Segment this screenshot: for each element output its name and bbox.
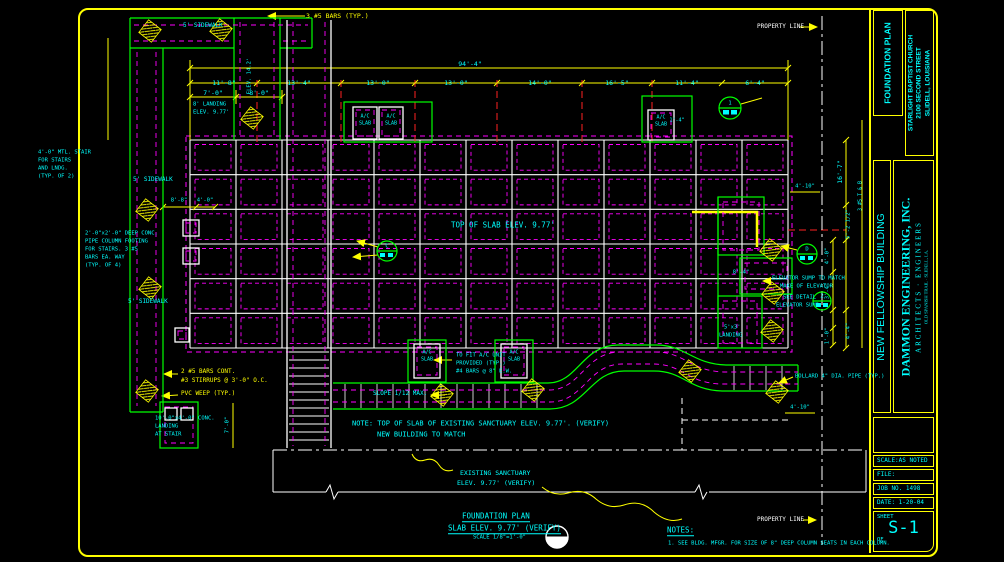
plan-type-label: FOUNDATION PLAN (882, 22, 893, 104)
dim-bay: 13'-0" (366, 80, 389, 87)
property-line-label: PROPERTY LINE (757, 24, 804, 30)
dim-overall-width: 94'-4" (458, 61, 481, 68)
ac-slab-label: SLAB (421, 358, 433, 363)
dim-bay: 13'-0" (444, 80, 467, 87)
client-line: 2100 SECOND STREET (915, 12, 923, 154)
dim-vert: 7'-0" (225, 417, 231, 434)
drawing-subtitle: SLAB ELEV. 9.77' (VERIFY) (448, 524, 561, 534)
elevator-note: MAKE OF ELEVATOR (780, 284, 833, 290)
landing-note: 10'-0"x4'-0" CONC. (155, 416, 215, 422)
titleblock-client: STARLIGHT BAPTIST CHURCH 2100 SECOND STR… (905, 10, 934, 156)
dim-bay: 6'-4" (745, 80, 765, 87)
ac-slab-label: A/C (509, 351, 518, 356)
detail-marker-label: D (805, 247, 808, 253)
dim-small: 8'-8" (171, 198, 188, 204)
landing-note: AT STAIR (155, 432, 182, 438)
ac-slab-label: SLAB (655, 123, 667, 128)
elevator-note: SEE DETAIL (783, 295, 816, 301)
ac-note: TO FIT A/C UNIT (456, 353, 506, 359)
stair-note: (TYP. OF 2) (38, 174, 74, 180)
landing-note: LANDING (719, 333, 742, 339)
dim-small: 1'-4" (669, 119, 684, 124)
firm-address-label: OLD SPANISH TRAIL · SLIDELL, LA. (923, 163, 929, 411)
elevator-note: ELEVATOR SUMP TO MATCH (772, 276, 845, 282)
sheet-number: S-1 (874, 520, 933, 537)
bollard-note: BOLLARD 4" DIA. PIPE (TYP.) (795, 374, 884, 380)
ac-note: #4 BARS @ 8" E.W. (456, 369, 512, 375)
dim-sub: 7'-0" (203, 90, 223, 97)
sidewalk-label: 5' SIDEWALK (133, 177, 173, 183)
dim-bay: 14'-0" (528, 80, 551, 87)
titleblock-firm: DAMMON ENGINEERING, INC. ARCHITECTS · EN… (893, 160, 934, 413)
client-line: STARLIGHT BAPTIST CHURCH (907, 12, 915, 154)
ac-slab-label: SLAB (385, 122, 397, 127)
note-1: 1. SEE BLDG. MFGR. FOR SIZE OF 8" DEEP C… (668, 541, 890, 547)
stair-note: FOR STAIRS (38, 158, 71, 164)
firm-subtitle-label: ARCHITECTS · ENGINEERS (914, 163, 923, 411)
detail-marker-label: C (385, 244, 388, 250)
stair-note: AND LNDG. (38, 166, 68, 172)
ac-slab-label: A/C (386, 115, 395, 120)
detail-marker-label: 2 (820, 294, 823, 300)
titleblock-job: JOB NO. 1498 (873, 483, 934, 495)
footing-note: FOR STAIRS. 3 #5 (85, 247, 138, 253)
building-name-label: NEW FELLOWSHIP BUILDING (875, 213, 889, 360)
landing-note: 5'x3' (724, 325, 741, 331)
dim-vert: 4'-4" (846, 323, 852, 340)
detail-marker-label: 1 (728, 101, 731, 107)
ac-slab-label: A/C (656, 116, 665, 121)
elev-label: ELEV. 14.2' (247, 58, 253, 94)
ac-slab-label: A/C (360, 115, 369, 120)
existing-sanctuary-label: ELEV. 9.77' (VERIFY) (457, 480, 535, 487)
note-pvc-weep: PVC WEEP (TYP.) (181, 391, 235, 397)
note-bars-typ: 3 #5 BARS (TYP.) (306, 13, 369, 20)
dim-bay: 13'-4" (287, 80, 310, 87)
dim-vert: 16'-7" (837, 160, 844, 183)
titleblock-plan-type: FOUNDATION PLAN (873, 10, 903, 116)
slope-note: SLOPE 1/12 MAX. (373, 391, 427, 397)
sidewalk-label: 5' SIDEWALK (183, 23, 223, 29)
ac-note: PROVIDED (TYP.) (456, 361, 506, 367)
landing-label: 8' LANDING (193, 102, 226, 108)
titleblock-file: FILE: (873, 469, 934, 481)
dim-small: 4'-0" (197, 198, 214, 204)
note-bars-tb: 3 #5 T & B (859, 181, 864, 211)
drawing-scale: SCALE 1/8"=1'-0" (473, 535, 526, 541)
titleblock-scale: SCALE:AS NOTED (873, 455, 934, 467)
dim-small: 4'-10" (795, 184, 815, 190)
footing-note: (TYP. OF 4) (85, 263, 121, 269)
note-bars-cont: 2 #5 BARS CONT. (181, 369, 235, 375)
notes-heading: NOTES: (667, 526, 694, 536)
dim-small: 8'-4" (733, 270, 750, 276)
ac-slab-label: A/C (422, 351, 431, 356)
dim-bay: 11'-8" (212, 80, 235, 87)
ac-slab-label: SLAB (508, 358, 520, 363)
footing-note: 2'-0"x2'-0" DEEP CONC. (85, 231, 158, 237)
titleblock-date: DATE: 1-20-04 (873, 497, 934, 509)
dim-small: 4'-10" (790, 405, 810, 411)
existing-sanctuary-label: EXISTING SANCTUARY (460, 470, 530, 477)
dim-bay: 16'-5" (605, 80, 628, 87)
stair-note: 4'-0" MTL. STAIR (38, 150, 91, 156)
ac-slab-label: SLAB (359, 122, 371, 127)
sanctuary-note: NEW BUILDING TO MATCH (377, 432, 466, 439)
titleblock-empty-box (873, 417, 934, 453)
sanctuary-note: NOTE: TOP OF SLAB OF EXISTING SANCTUARY … (352, 421, 609, 428)
titleblock-divider (869, 8, 871, 553)
slab-elev-label: TOP OF SLAB ELEV. 9.77' (451, 221, 555, 229)
dim-vert: 1'-0" (825, 328, 831, 345)
landing-note: LANDING (155, 424, 178, 430)
cad-sheet: FOUNDATION PLAN STARLIGHT BAPTIST CHURCH… (0, 0, 1004, 562)
dim-vert: 5'-2 1/2" (846, 209, 852, 239)
client-line: SLIDELL, LOUISIANA (924, 12, 932, 154)
footing-note: PIPE COLUMN FOOTING (85, 239, 148, 245)
landing-label: ELEV. 9.77' (193, 110, 229, 116)
note-stirrups: #3 STIRRUPS @ 3'-0" O.C. (181, 378, 268, 384)
drawing-title: FOUNDATION PLAN (462, 512, 530, 522)
dim-bay: 11'-4" (675, 80, 698, 87)
property-line-label: PROPERTY LINE (757, 517, 804, 523)
elevator-note: ELEVATOR SUMP (776, 303, 819, 309)
dim-vert: 4'-0" (825, 248, 831, 265)
footing-note: BARS EA. WAY (85, 255, 125, 261)
firm-name-label: DAMMON ENGINEERING, INC. (898, 163, 914, 411)
sidewalk-label: 5' SIDEWALK (128, 299, 168, 305)
